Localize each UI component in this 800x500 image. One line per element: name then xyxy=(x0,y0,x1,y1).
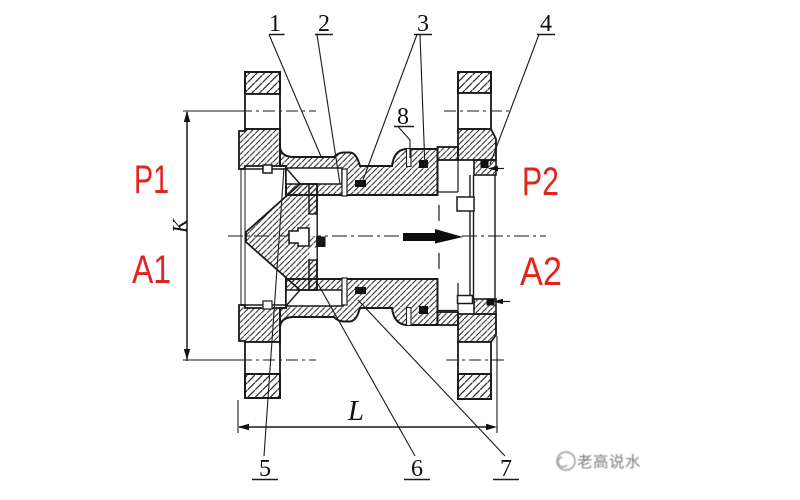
svg-text:4: 4 xyxy=(540,11,552,37)
svg-text:A1: A1 xyxy=(132,248,171,292)
svg-text:6: 6 xyxy=(411,456,423,482)
svg-text:1: 1 xyxy=(269,11,281,37)
svg-text:P1: P1 xyxy=(134,158,169,202)
svg-text:5: 5 xyxy=(259,456,271,482)
svg-text:A2: A2 xyxy=(520,250,562,294)
svg-text:老高说水: 老高说水 xyxy=(577,453,641,471)
svg-text:7: 7 xyxy=(500,456,512,482)
svg-text:3: 3 xyxy=(417,11,429,37)
svg-text:K: K xyxy=(168,218,192,234)
svg-text:L: L xyxy=(347,395,364,427)
svg-text:2: 2 xyxy=(318,11,330,37)
svg-text:P2: P2 xyxy=(522,160,559,204)
